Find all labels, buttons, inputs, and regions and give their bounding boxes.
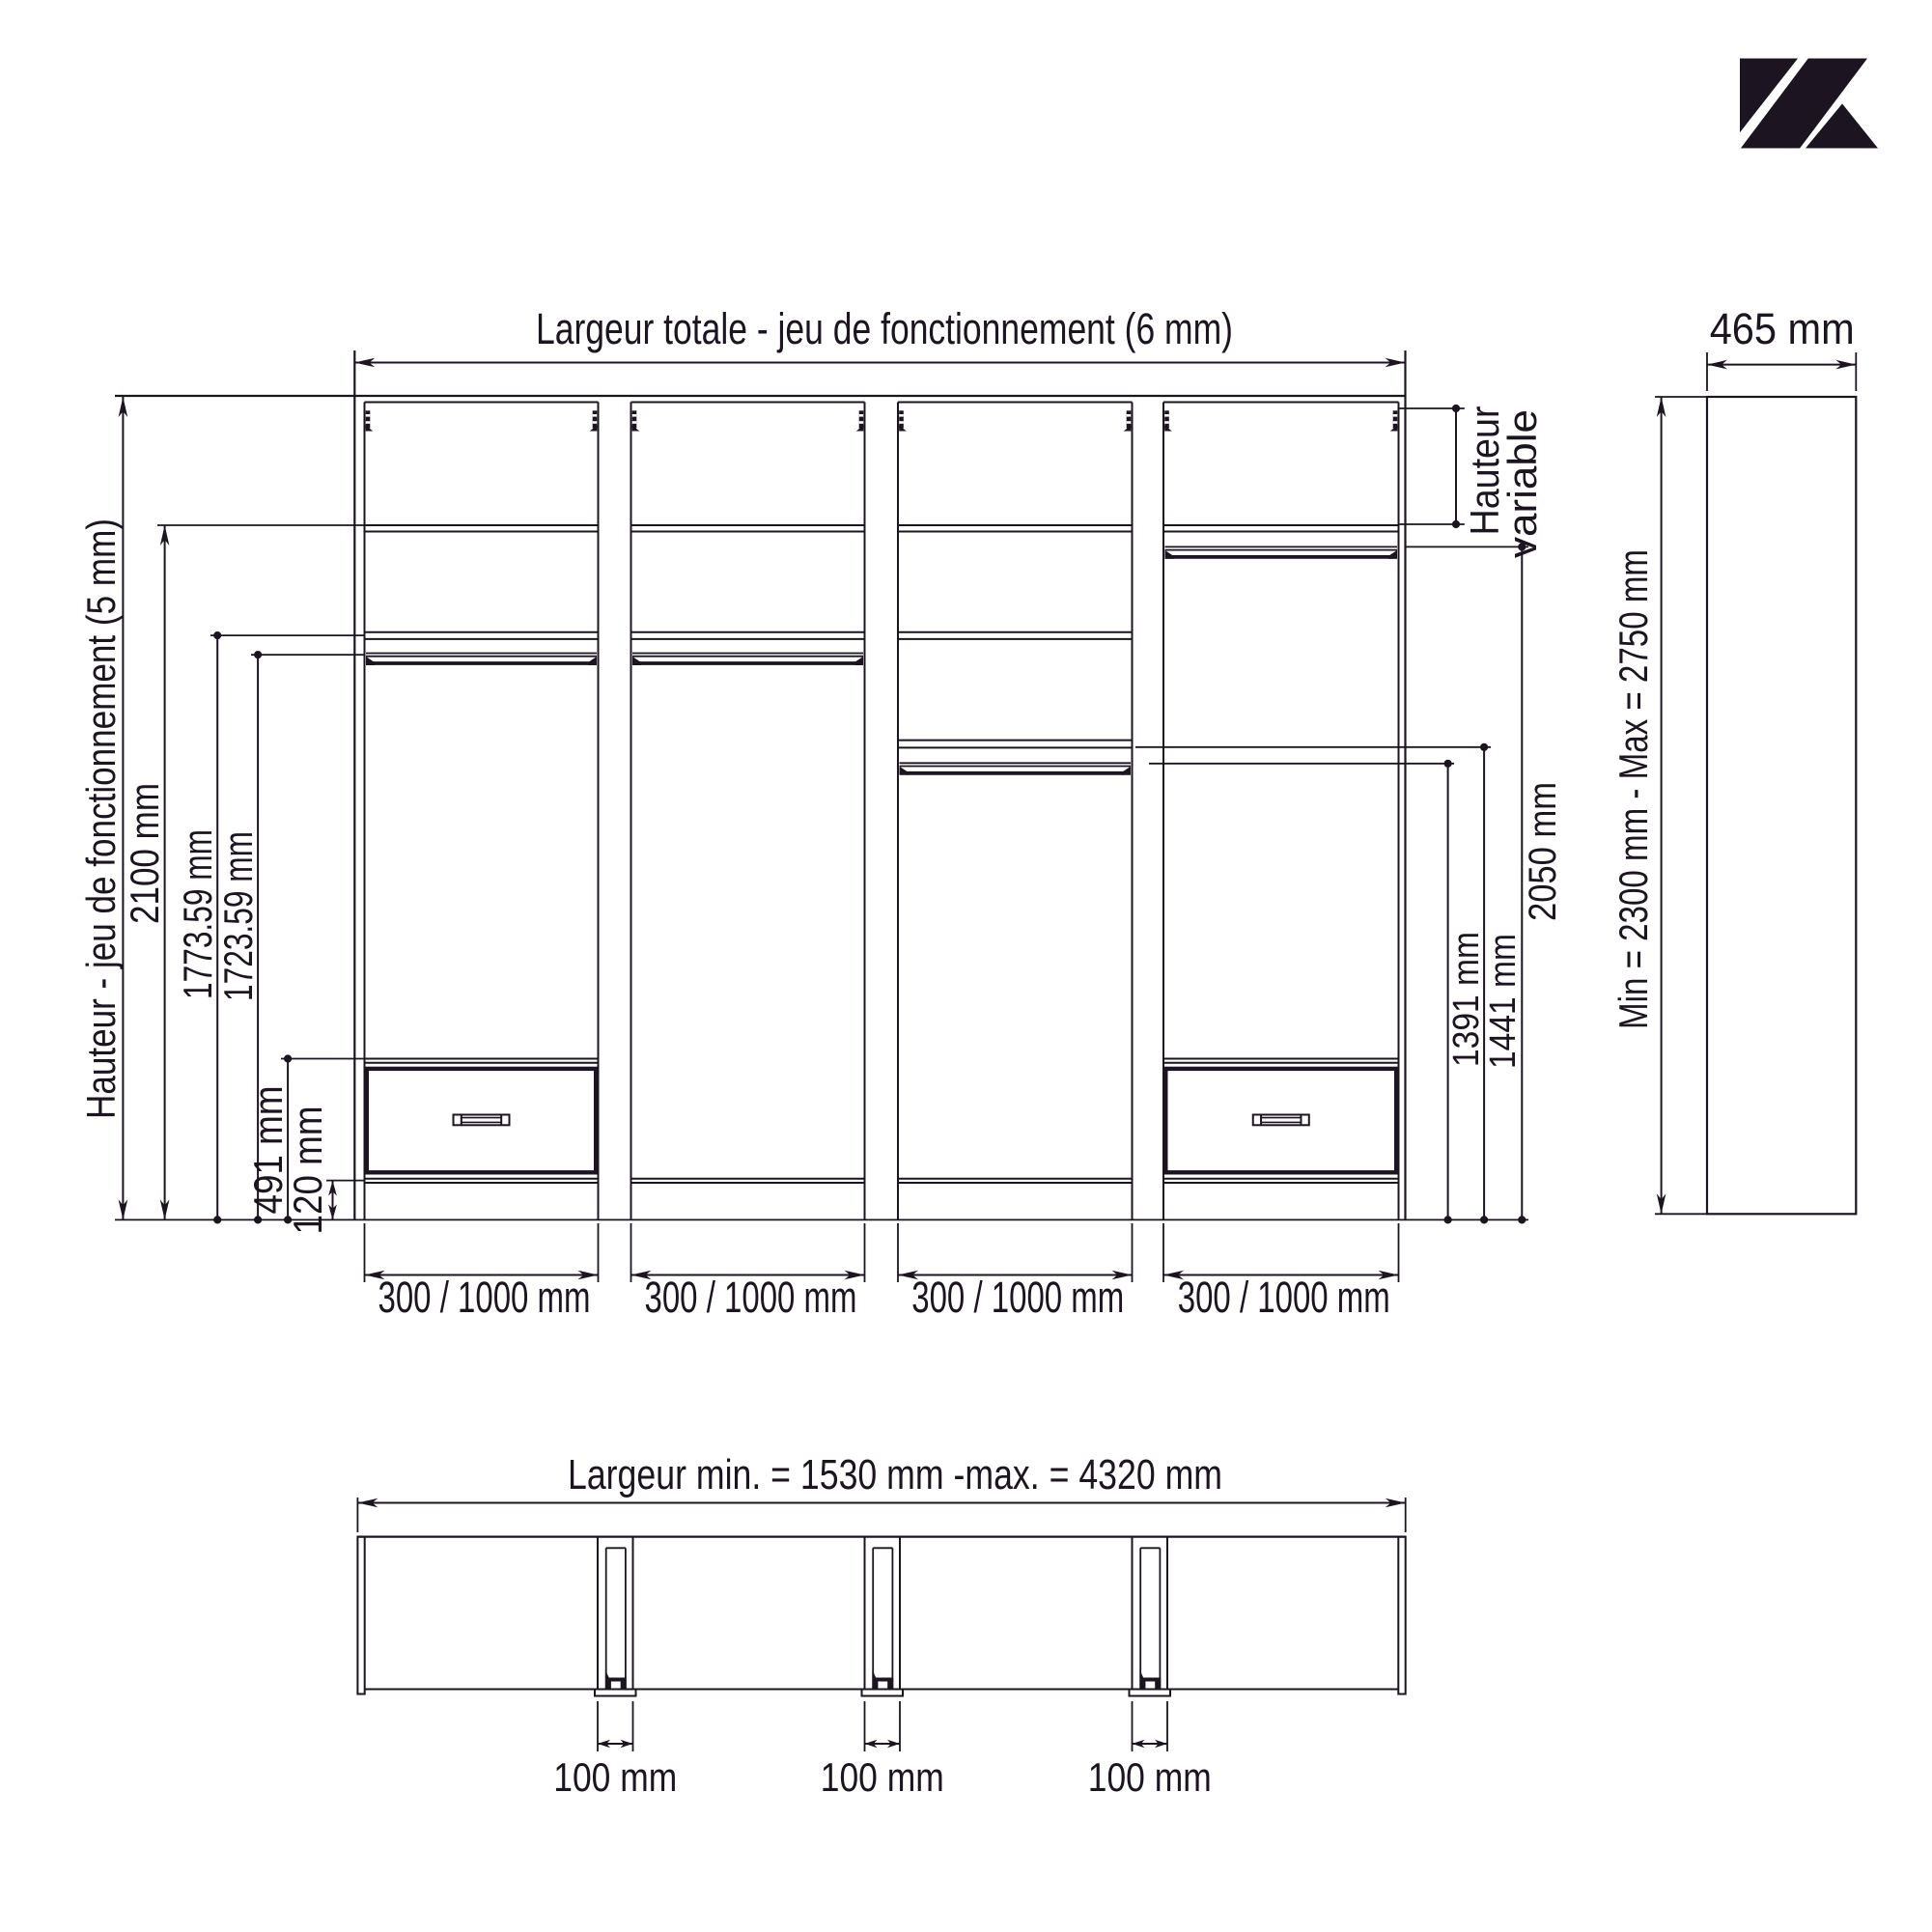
svg-text:300 / 1000 mm: 300 / 1000 mm [1178,1273,1390,1322]
svg-text:1441 mm: 1441 mm [1483,934,1524,1069]
svg-text:100 mm: 100 mm [821,1754,944,1800]
svg-text:100 mm: 100 mm [553,1754,677,1800]
svg-text:300 / 1000 mm: 300 / 1000 mm [378,1273,591,1322]
svg-text:1723.59 mm: 1723.59 mm [215,831,261,1001]
svg-text:Largeur min. = 1530 mm -max. =: Largeur min. = 1530 mm -max. = 4320 mm [568,1451,1222,1498]
svg-text:Hauteur - jeu de fonctionnemen: Hauteur - jeu de fonctionnement (5 mm) [78,518,124,1119]
svg-text:1391 mm: 1391 mm [1446,932,1487,1067]
svg-text:1773.59 mm: 1773.59 mm [175,829,220,999]
svg-text:Min = 2300 mm - Max = 2750 mm: Min = 2300 mm - Max = 2750 mm [1610,549,1656,1029]
svg-text:100 mm: 100 mm [1088,1754,1212,1800]
svg-text:120 mm: 120 mm [285,1106,330,1235]
svg-text:465 mm: 465 mm [1710,304,1855,353]
svg-text:300 / 1000 mm: 300 / 1000 mm [911,1273,1124,1322]
svg-text:2100 mm: 2100 mm [122,783,167,924]
svg-text:300 / 1000 mm: 300 / 1000 mm [645,1273,857,1322]
svg-text:Largeur totale - jeu de foncti: Largeur totale - jeu de fonctionnement (… [536,304,1233,353]
svg-text:2050 mm: 2050 mm [1522,782,1564,921]
svg-text:491 mm: 491 mm [245,1086,291,1215]
svg-text:variable: variable [1499,409,1545,558]
